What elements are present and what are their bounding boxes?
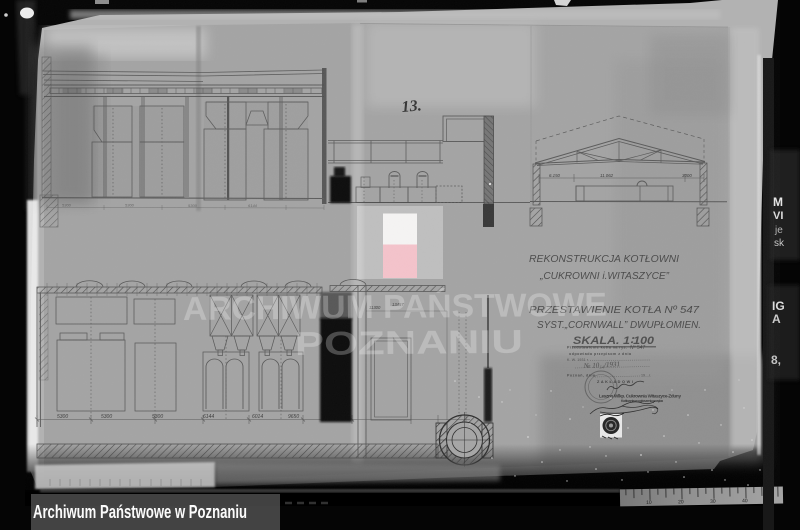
- svg-text:40: 40: [742, 498, 748, 504]
- svg-text:20: 20: [678, 499, 684, 505]
- svg-text:10: 10: [646, 500, 652, 506]
- svg-text:30: 30: [710, 499, 716, 505]
- svg-text:Archiwum Państwowe w Poznaniu: Archiwum Państwowe w Poznaniu: [33, 502, 247, 522]
